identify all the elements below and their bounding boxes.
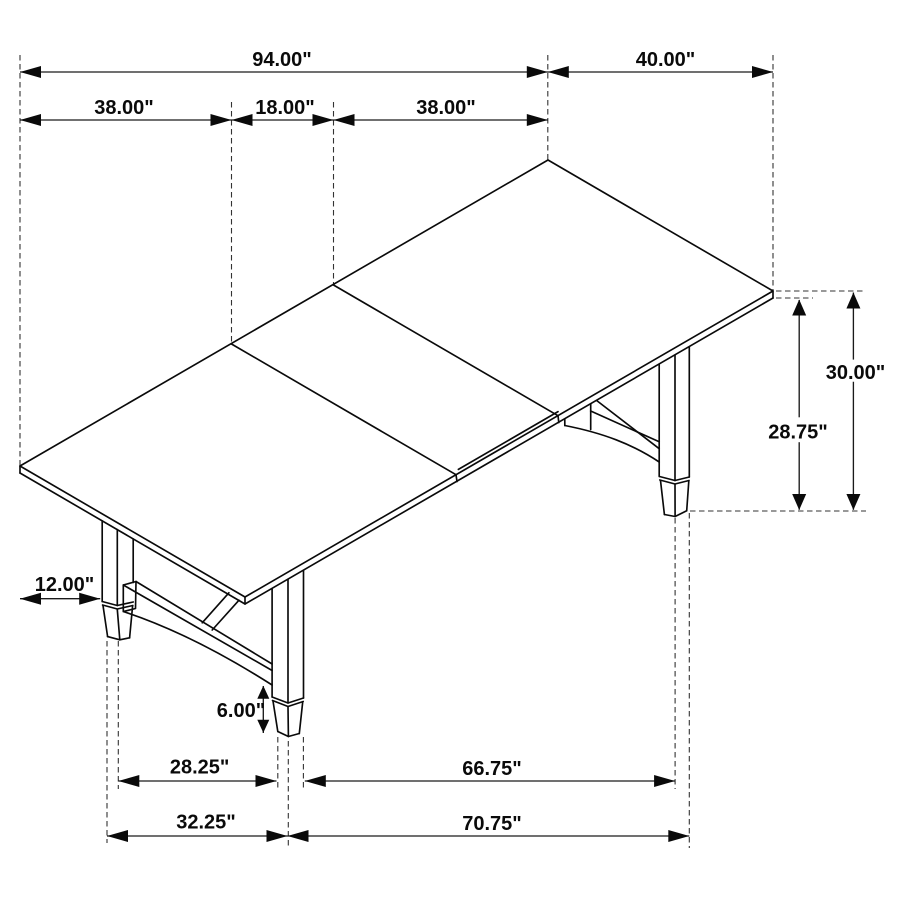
svg-text:18.00": 18.00" — [255, 97, 315, 119]
svg-text:30.00": 30.00" — [826, 362, 886, 384]
svg-text:6.00": 6.00" — [217, 700, 265, 722]
svg-text:40.00": 40.00" — [636, 49, 696, 71]
svg-text:32.25": 32.25" — [176, 811, 236, 833]
svg-text:38.00": 38.00" — [416, 97, 476, 119]
svg-text:94.00": 94.00" — [252, 49, 312, 71]
svg-text:28.25": 28.25" — [170, 757, 230, 779]
svg-text:12.00": 12.00" — [35, 574, 95, 596]
svg-text:38.00": 38.00" — [94, 97, 154, 119]
svg-text:66.75": 66.75" — [462, 758, 522, 780]
svg-text:70.75": 70.75" — [462, 813, 522, 835]
svg-text:28.75": 28.75" — [768, 422, 828, 444]
